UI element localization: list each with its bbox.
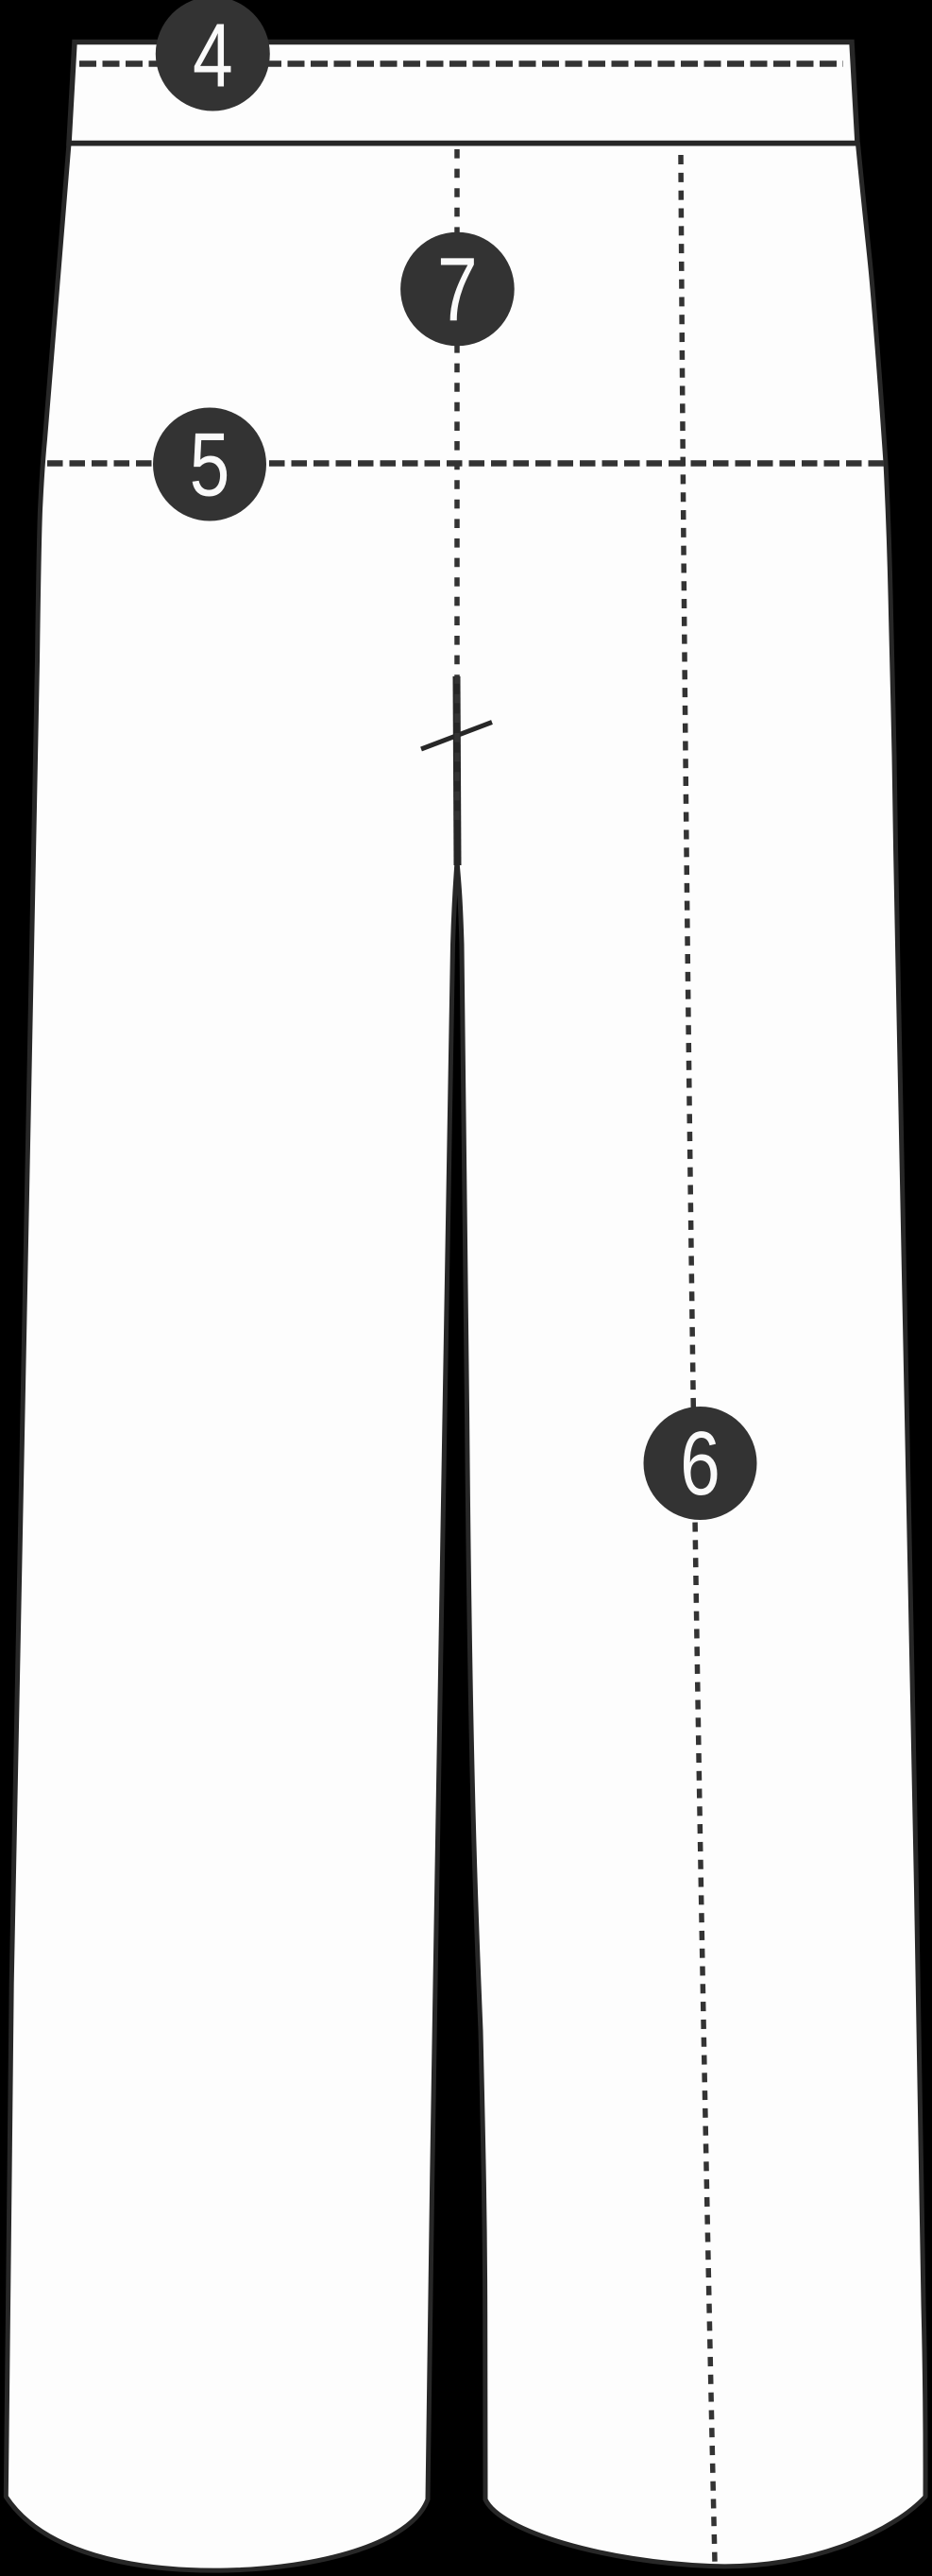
svg-text:5: 5 (190, 414, 230, 515)
svg-text:4: 4 (193, 5, 233, 106)
svg-text:7: 7 (437, 239, 478, 340)
svg-text:6: 6 (680, 1413, 720, 1514)
